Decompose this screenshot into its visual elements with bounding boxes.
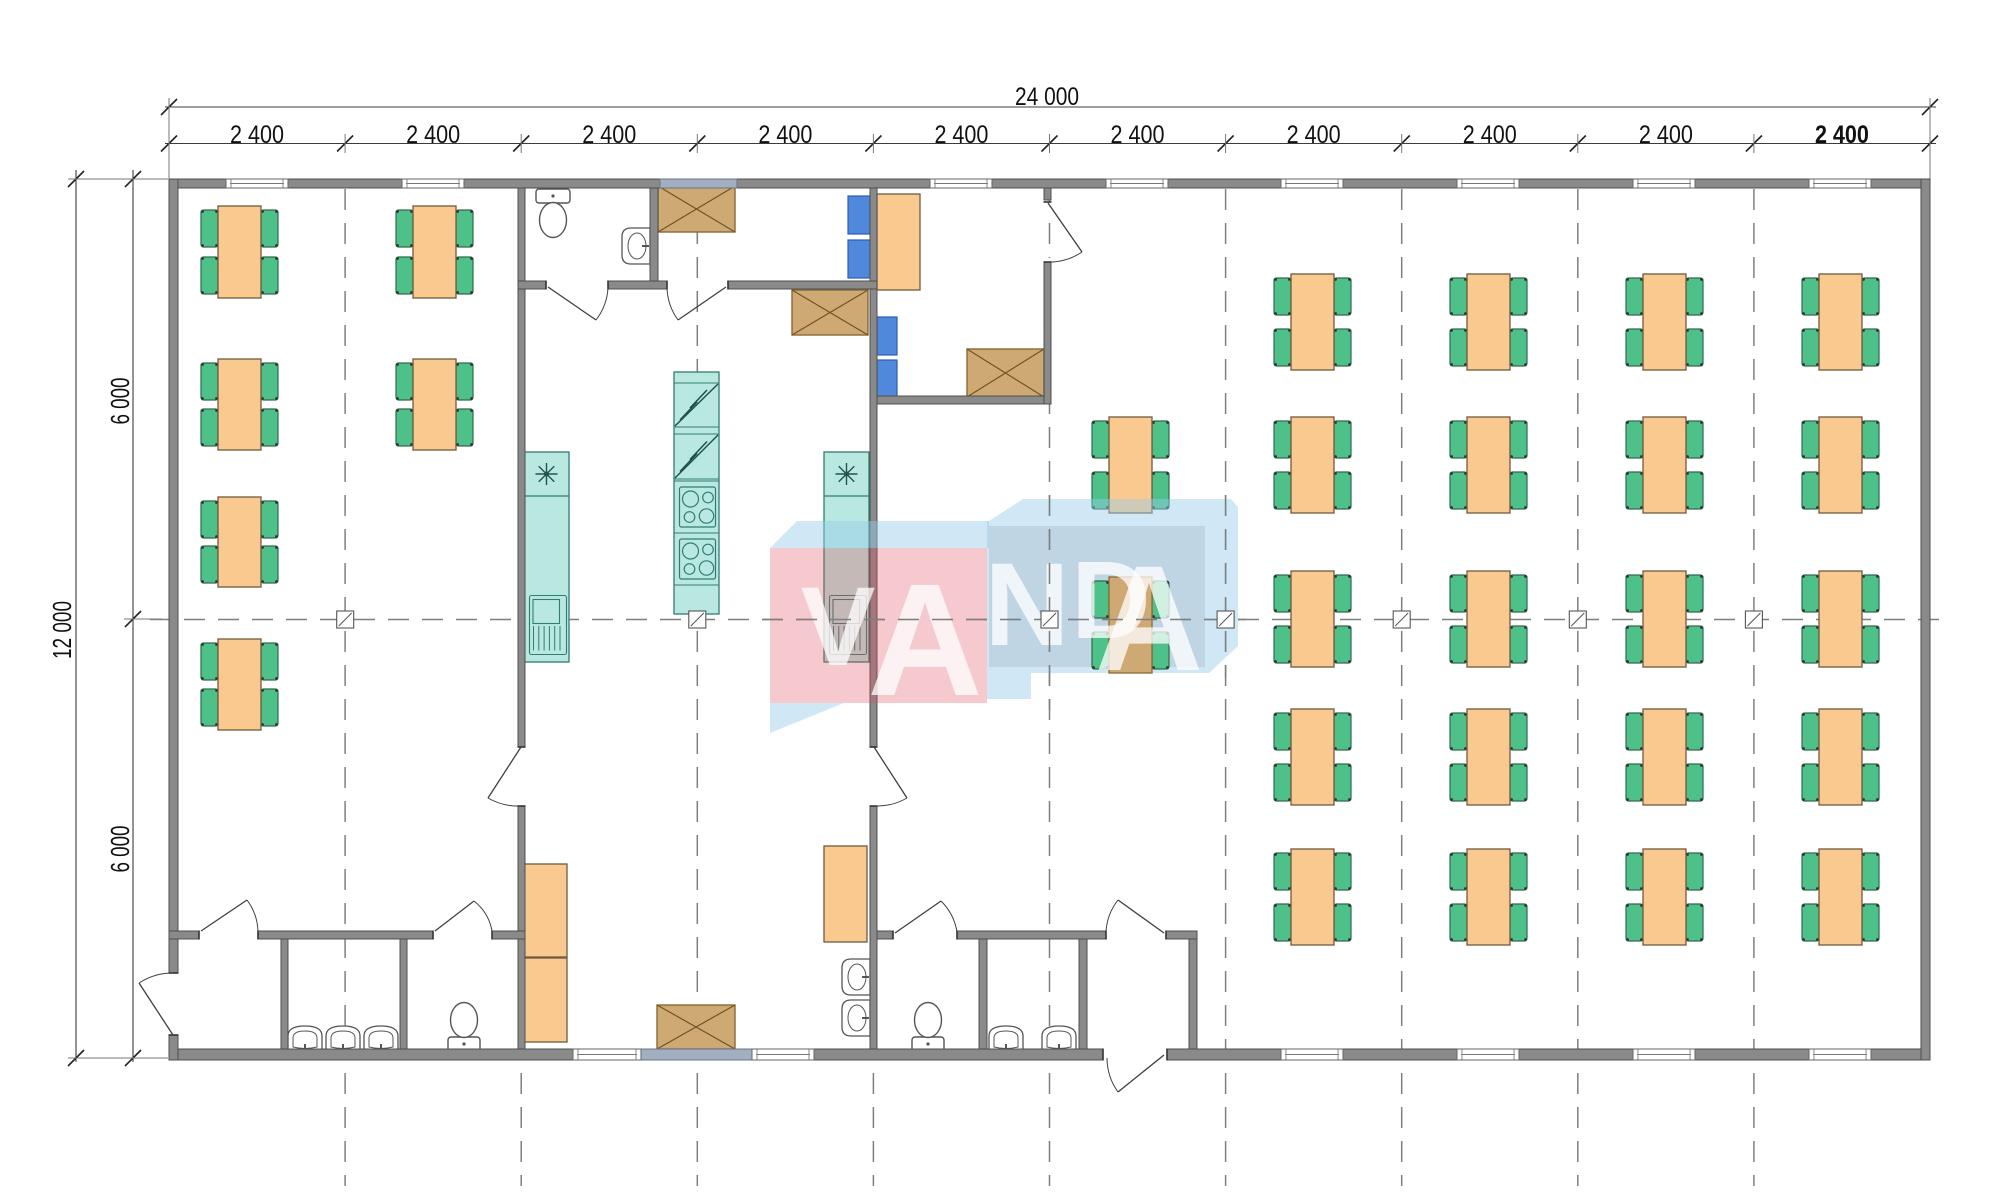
svg-text:2 400: 2 400 bbox=[582, 121, 636, 149]
svg-text:V: V bbox=[801, 564, 876, 689]
svg-text:N: N bbox=[984, 539, 1069, 671]
svg-text:A: A bbox=[1095, 534, 1203, 702]
svg-text:2 400: 2 400 bbox=[1815, 121, 1869, 149]
svg-text:6 000: 6 000 bbox=[105, 378, 135, 425]
svg-text:2 400: 2 400 bbox=[758, 121, 812, 149]
svg-text:2 400: 2 400 bbox=[1287, 121, 1341, 149]
svg-text:2 400: 2 400 bbox=[406, 121, 460, 149]
svg-text:24 000: 24 000 bbox=[1015, 83, 1079, 111]
svg-text:A: A bbox=[867, 550, 983, 729]
svg-text:2 400: 2 400 bbox=[230, 121, 284, 149]
svg-text:6 000: 6 000 bbox=[105, 826, 135, 873]
svg-text:2 400: 2 400 bbox=[1639, 121, 1693, 149]
svg-text:12 000: 12 000 bbox=[47, 601, 77, 659]
svg-text:2 400: 2 400 bbox=[1111, 121, 1165, 149]
svg-text:2 400: 2 400 bbox=[934, 121, 988, 149]
svg-text:2 400: 2 400 bbox=[1463, 121, 1517, 149]
